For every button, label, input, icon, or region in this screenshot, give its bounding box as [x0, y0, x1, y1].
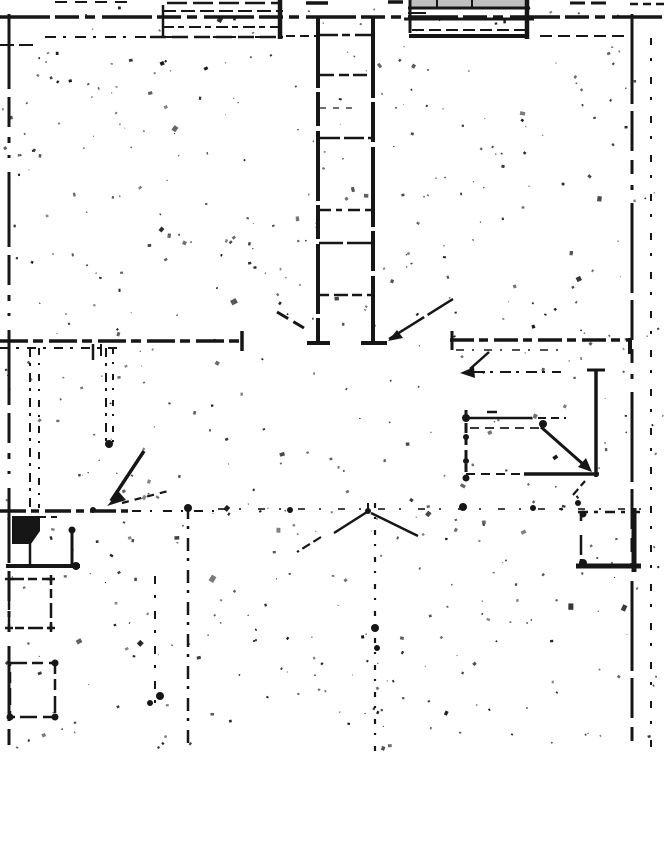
floor-plan-canvas [0, 0, 666, 855]
outer-walls [0, 14, 666, 748]
left-fixtures [5, 516, 80, 721]
edge-stubs [55, 2, 666, 4]
staircase [307, 18, 387, 343]
top-left-window [150, 0, 283, 39]
right-fixtures [459, 370, 641, 572]
annotations [107, 299, 592, 552]
top-right-window [404, 0, 534, 39]
floor-plan-page [0, 0, 666, 855]
scan-noise-layer [2, 6, 664, 750]
